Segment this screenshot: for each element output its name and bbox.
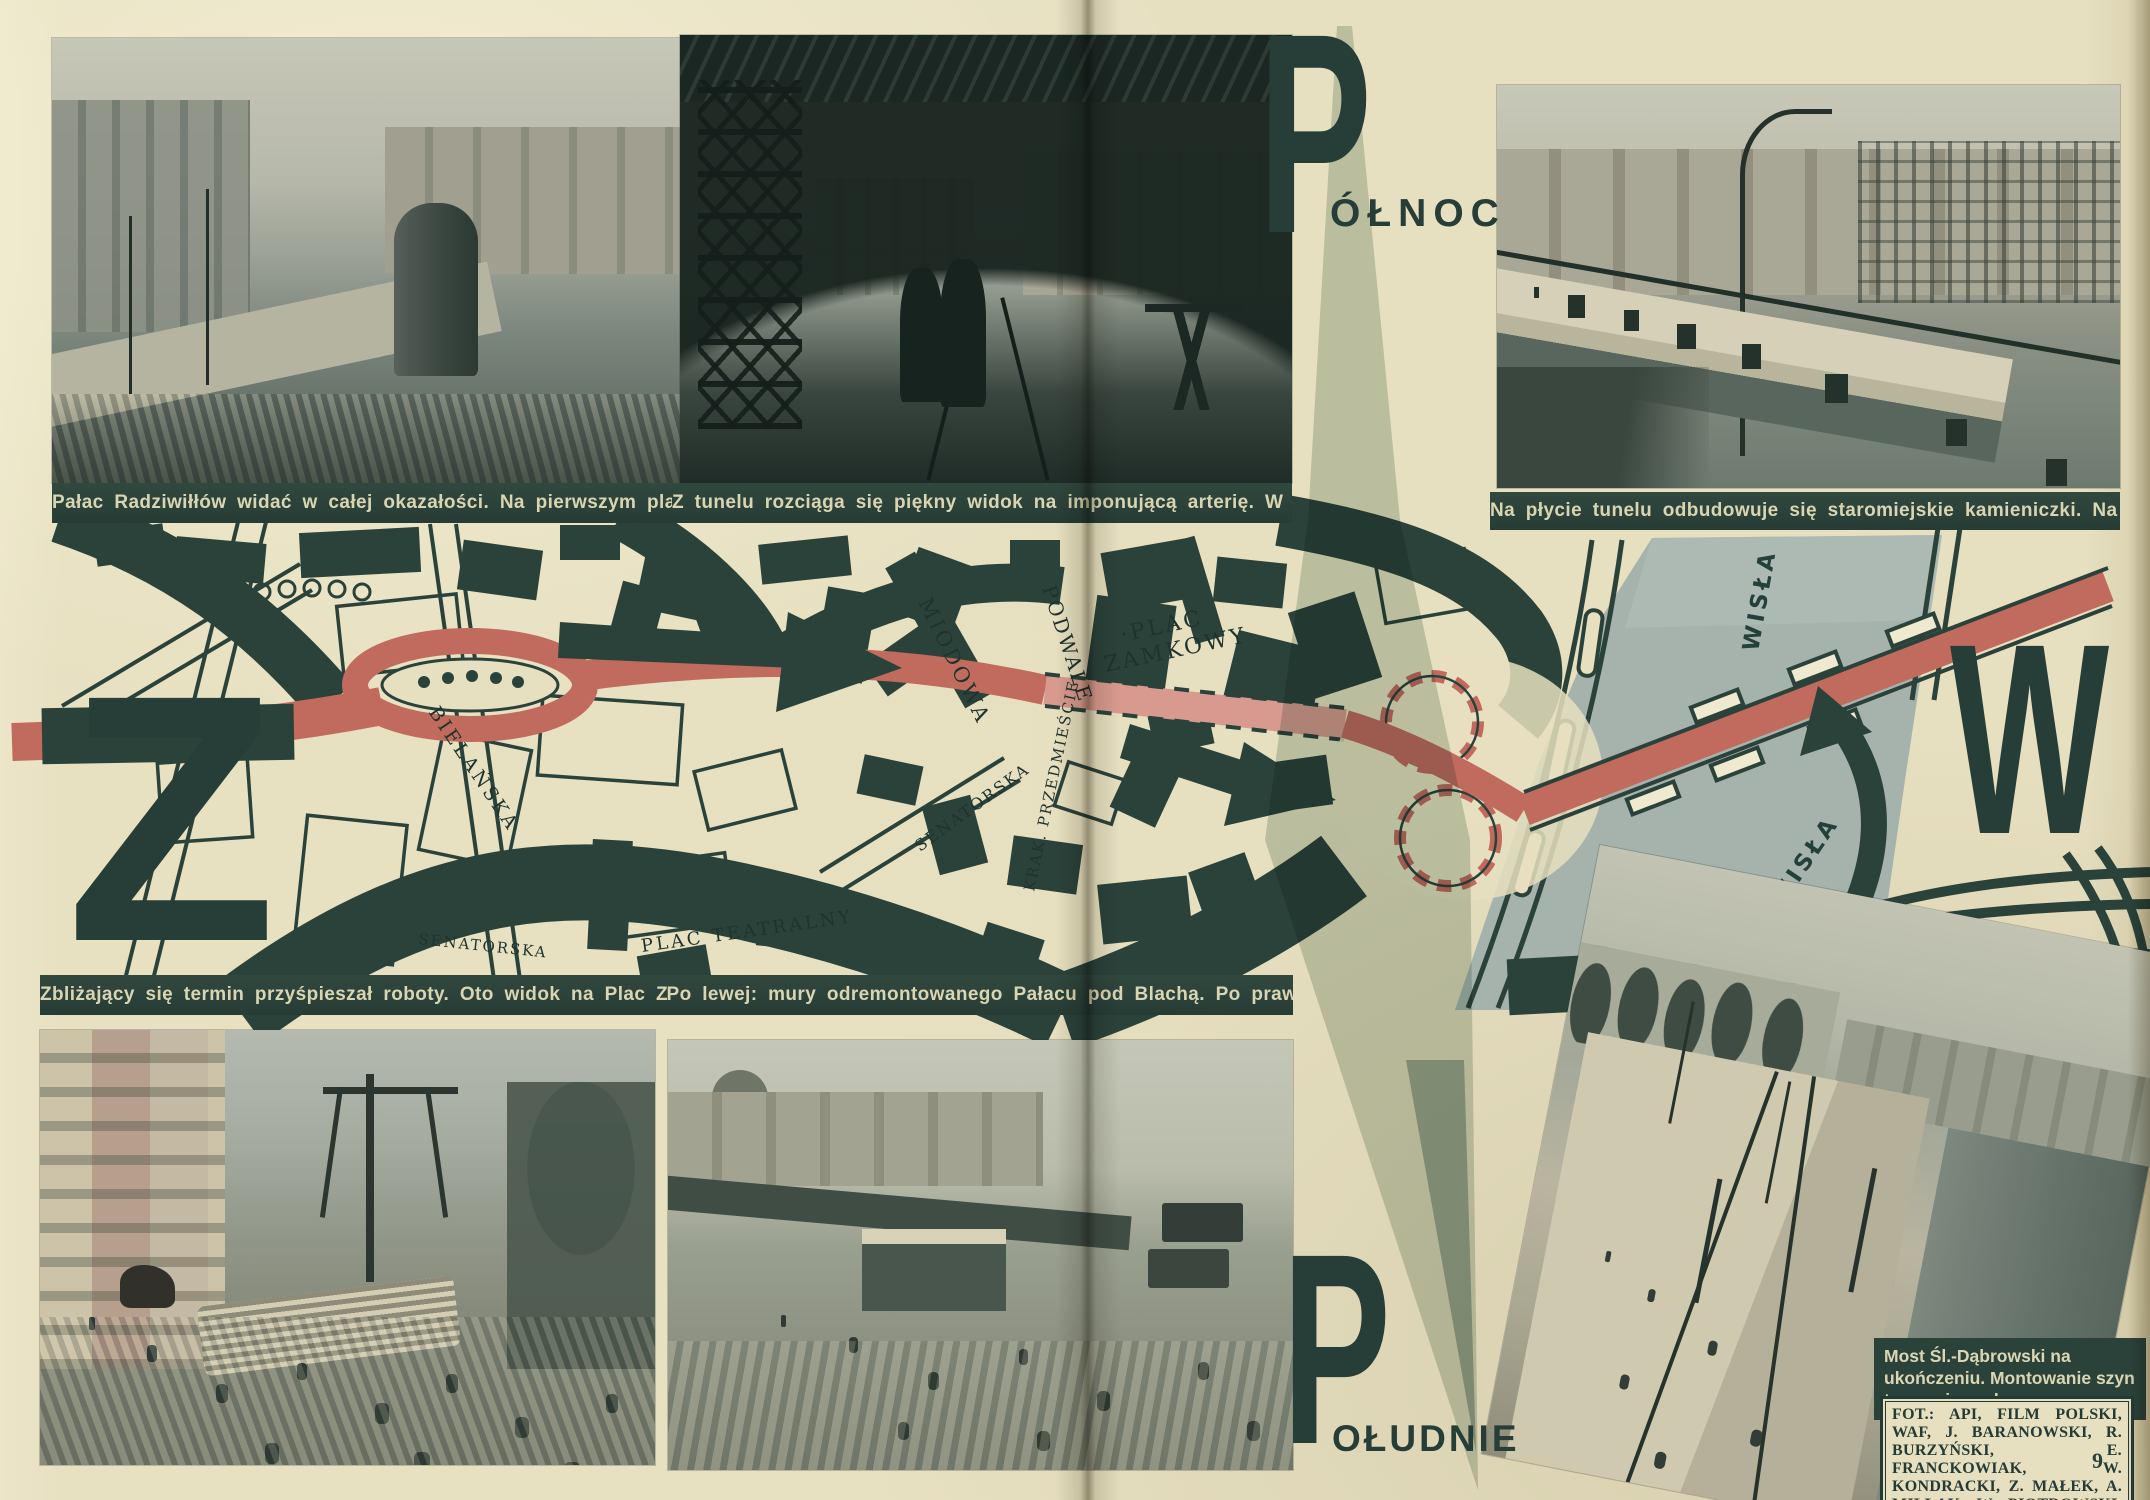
magazine-spread: MIODOWA PODWALE ·PLAC ZAMKOWY BIELAŃSKA …: [0, 0, 2150, 1500]
compass-letter-east-W: W: [1950, 642, 2109, 838]
caption-bar-top-right: Na płycie tunelu odbudowuje się staromie…: [1490, 492, 2120, 530]
caption-top-left: Pałac Radziwiłłów widać w całej okazałoś…: [52, 492, 672, 514]
gruba-kaska-tower: [394, 203, 477, 377]
rubble-texture: [40, 1317, 655, 1465]
scaffolding-right: [1858, 141, 2120, 302]
compass-word-poludnie: OŁUDNIE: [1332, 1418, 1520, 1460]
photo-bottom-middle-viaduct-works: [668, 1040, 1293, 1470]
gantry-leg: [320, 1087, 343, 1217]
workers-on-parapet: [1534, 287, 1539, 298]
page-number: 9: [2092, 1448, 2103, 1474]
ruin-left: [52, 100, 250, 331]
trucks: [1162, 1203, 1243, 1242]
photo-top-left-palac-radziwillow: [52, 38, 692, 483]
figure-silhouette: [940, 259, 986, 407]
photo-top-middle-tunnel-view: [680, 35, 1292, 483]
gantry-mast: [366, 1074, 374, 1283]
rubble-foreground: [52, 394, 692, 483]
caption-top-right: Na płycie tunelu odbudowuje się staromie…: [1490, 500, 2120, 522]
excavation-dark: [1497, 367, 1709, 488]
compass-word-polnoc: ÓŁNOC: [1330, 192, 1506, 236]
boulevard: [1505, 1032, 1929, 1500]
far-buildings: [668, 1092, 1043, 1187]
figure-silhouette: [900, 268, 943, 402]
caption-middle-right: Po lewej: mury odremontowanego Pałacu po…: [667, 984, 1294, 1006]
caption-bar-top: Pałac Radziwiłłów widać w całej okazałoś…: [52, 483, 1292, 523]
work-shed: [862, 1229, 1006, 1311]
lamp-curved: [1740, 109, 1832, 219]
gantry-leg: [425, 1087, 448, 1217]
compass-letter-west-Z: Z: [66, 692, 277, 945]
lamp-post: [129, 216, 132, 394]
lamp-post: [206, 189, 209, 385]
photo-top-right-tunnel-slab: [1497, 85, 2120, 488]
caption-top-middle: Z tunelu rozciąga się piękny widok na im…: [672, 492, 1292, 514]
gantry-crossbar: [323, 1087, 458, 1094]
photo-bottom-left-street-works: [40, 1030, 655, 1465]
wooden-trestle: [1145, 304, 1243, 411]
ground-texture: [668, 1341, 1293, 1470]
scaffold-tower: [698, 80, 802, 429]
workers-dots: [781, 1315, 786, 1327]
